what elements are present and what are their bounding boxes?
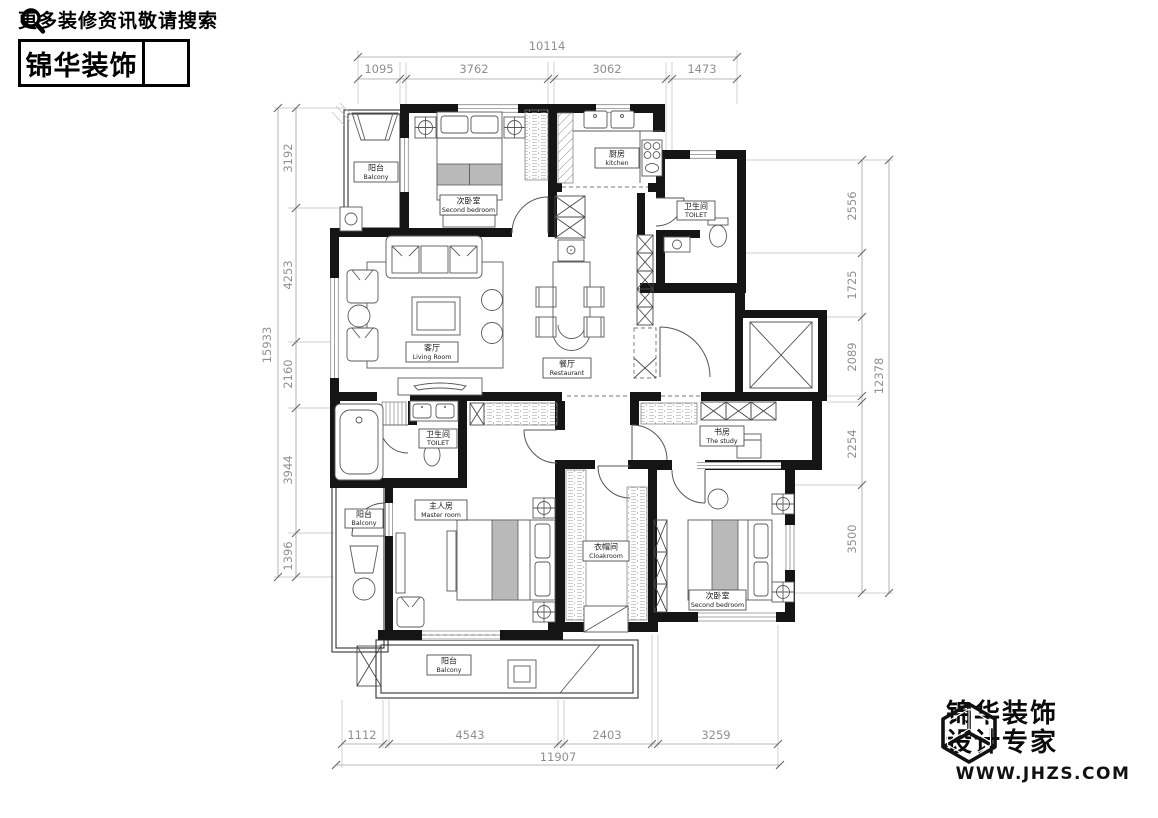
- dimension-left: 15933 3192 4253 2160 3944 1396: [260, 104, 300, 581]
- dining-cabinet: [555, 196, 585, 238]
- svg-text:Second bedroom: Second bedroom: [442, 207, 495, 214]
- dim-bottom-seg0: 1112: [347, 728, 376, 742]
- dining-chair: [536, 317, 556, 337]
- window: [785, 525, 795, 570]
- cloakroom-wardrobe-right: [627, 487, 647, 620]
- dining-chair: [584, 287, 604, 307]
- sliding-door: [422, 630, 500, 640]
- room-label-cloakroom: 衣帽间 Cloakroom: [583, 541, 629, 561]
- door-second-bedroom-bottom: [672, 470, 705, 503]
- svg-text:Balcony: Balcony: [352, 520, 377, 527]
- window: [690, 150, 716, 159]
- tv-cabinet: [398, 378, 482, 395]
- dim-top-seg1: 3762: [459, 62, 488, 76]
- shoe-cabinet: [634, 328, 656, 378]
- svg-text:卫生间: 卫生间: [426, 429, 450, 439]
- room-label-toilet-top: 卫生间 TOILET: [677, 201, 715, 220]
- dim-left-total: 15933: [260, 327, 274, 364]
- dining-chair: [536, 287, 556, 307]
- tv-cabinet: [396, 533, 405, 593]
- dim-left-seg4: 1396: [281, 541, 295, 570]
- svg-text:Cloakroom: Cloakroom: [589, 553, 623, 560]
- ceiling-lamp: [533, 602, 555, 622]
- dim-left-seg0: 3192: [281, 143, 295, 172]
- svg-text:次卧室: 次卧室: [706, 591, 730, 601]
- ceiling-lamp: [504, 117, 525, 138]
- kitchen-sink: [584, 111, 607, 128]
- svg-text:厨房: 厨房: [609, 149, 625, 159]
- dim-right-seg3: 2254: [845, 429, 859, 458]
- svg-text:Balcony: Balcony: [437, 667, 462, 674]
- ceiling-lamp: [772, 582, 794, 602]
- dim-right-seg1: 1725: [845, 270, 859, 299]
- pouf: [482, 323, 503, 344]
- entrance-door: [660, 327, 710, 377]
- door-cloakroom: [598, 466, 630, 498]
- dimension-right: 2556 1725 2089 2254 3500 12378: [845, 156, 893, 597]
- svg-text:书房: 书房: [714, 427, 730, 437]
- cloakroom-bench: [584, 606, 628, 632]
- svg-text:卫生间: 卫生间: [684, 201, 708, 211]
- armchair: [347, 270, 378, 303]
- svg-text:Restaurant: Restaurant: [550, 370, 585, 377]
- pouf: [482, 290, 503, 311]
- svg-text:次卧室: 次卧室: [457, 196, 481, 206]
- floor-plan: 10114 1095 3762 3062 1473 15933 3192 425…: [0, 0, 1158, 818]
- svg-text:餐厅: 餐厅: [559, 360, 575, 369]
- room-label-toilet-master: 卫生间 TOILET: [419, 429, 457, 448]
- ceiling-lamp: [533, 498, 555, 518]
- study-cabinets: [701, 402, 776, 420]
- dim-top-seg0: 1095: [364, 62, 393, 76]
- bed-bench: [443, 215, 495, 227]
- room-label-living-room: 客厅 Living Room: [406, 342, 458, 362]
- dim-left-seg2: 2160: [281, 359, 295, 388]
- bathtub: [335, 404, 383, 480]
- room-label-kitchen: 厨房 kitchen: [595, 148, 639, 168]
- door-master-room: [524, 430, 557, 463]
- sliding-door: [400, 138, 409, 192]
- washing-machine: [340, 207, 362, 231]
- svg-text:阳台: 阳台: [441, 656, 457, 666]
- door-second-bedroom-top: [512, 197, 548, 233]
- wardrobe: [525, 110, 548, 180]
- svg-text:阳台: 阳台: [356, 509, 372, 519]
- window: [698, 612, 776, 622]
- hall-cabinet-column: [637, 235, 653, 325]
- ceiling-lamp: [772, 494, 794, 514]
- room-label-balcony-left: 阳台 Balcony: [345, 509, 383, 528]
- dim-top-total: 10114: [529, 39, 566, 53]
- window: [330, 278, 339, 378]
- svg-text:TOILET: TOILET: [426, 440, 449, 447]
- master-cabinet: [470, 403, 484, 425]
- room-label-balcony-bottom: 阳台 Balcony: [427, 655, 471, 675]
- stove: [642, 140, 662, 176]
- dim-left-seg3: 3944: [281, 455, 295, 484]
- dim-bottom-seg2: 2403: [592, 728, 621, 742]
- room-label-study: 书房 The study: [700, 426, 744, 446]
- dimension-top: 10114 1095 3762 3062 1473: [354, 39, 741, 83]
- door-study: [632, 425, 667, 460]
- svg-text:Living Room: Living Room: [413, 354, 452, 361]
- svg-text:衣帽间: 衣帽间: [594, 542, 618, 552]
- dim-right-total: 12378: [872, 358, 886, 395]
- svg-text:Master room: Master room: [421, 512, 461, 519]
- elevator-shaft: [750, 322, 812, 388]
- round-table: [708, 489, 728, 509]
- svg-text:主人房: 主人房: [429, 501, 453, 511]
- dim-bottom-seg3: 3259: [701, 728, 730, 742]
- svg-text:客厅: 客厅: [424, 343, 440, 353]
- dim-right-seg4: 3500: [845, 524, 859, 553]
- dim-bottom-seg1: 4543: [455, 728, 484, 742]
- armchair: [397, 597, 424, 627]
- dim-left-seg1: 4253: [281, 260, 295, 289]
- dim-top-seg2: 3062: [592, 62, 621, 76]
- window: [697, 462, 781, 469]
- svg-text:阳台: 阳台: [368, 163, 384, 173]
- ceiling-lamp: [415, 117, 436, 138]
- svg-text:The study: The study: [705, 438, 737, 445]
- radiator: [382, 402, 406, 425]
- kitchen-sink: [611, 111, 634, 128]
- dim-right-seg0: 2556: [845, 191, 859, 220]
- room-label-master-room: 主人房 Master room: [415, 500, 467, 520]
- vanity: [410, 401, 458, 421]
- side-table: [348, 305, 370, 327]
- hall-table: [558, 240, 584, 261]
- svg-text:TOILET: TOILET: [684, 212, 707, 219]
- bed-second-bedroom-top: [437, 112, 502, 200]
- svg-text:Balcony: Balcony: [364, 174, 389, 181]
- ac-unit: [508, 660, 536, 688]
- balcony-chair: [350, 546, 378, 573]
- svg-text:kitchen: kitchen: [605, 160, 628, 167]
- fridge-cabinet: [558, 113, 573, 183]
- svg-text:Second bedroom: Second bedroom: [691, 602, 744, 609]
- coffee-table: [412, 297, 460, 335]
- bathroom-sink: [664, 237, 690, 252]
- dining-chair: [584, 317, 604, 337]
- dim-bottom-total: 11907: [540, 750, 577, 764]
- bed-bench: [447, 531, 456, 591]
- bed-second-bedroom-bottom: [688, 520, 772, 600]
- toilet-fixture: [708, 218, 728, 247]
- window: [385, 503, 393, 536]
- wardrobe: [641, 403, 697, 424]
- sofa: [386, 236, 482, 278]
- balcony-bottom-structure: [376, 640, 638, 698]
- room-label-restaurant: 餐厅 Restaurant: [543, 358, 591, 378]
- wardrobe: [484, 403, 557, 425]
- room-label-second-bedroom-top: 次卧室 Second bedroom: [440, 195, 497, 215]
- bed-master: [457, 520, 555, 600]
- dim-top-seg3: 1473: [687, 62, 716, 76]
- balcony-table: [353, 578, 375, 600]
- dim-right-seg2: 2089: [845, 342, 859, 371]
- curtain: [352, 113, 398, 140]
- door-bathroom: [380, 425, 408, 453]
- armchair: [347, 328, 378, 361]
- room-label-balcony-top: 阳台 Balcony: [354, 162, 398, 182]
- room-label-second-bedroom-bottom: 次卧室 Second bedroom: [689, 590, 746, 610]
